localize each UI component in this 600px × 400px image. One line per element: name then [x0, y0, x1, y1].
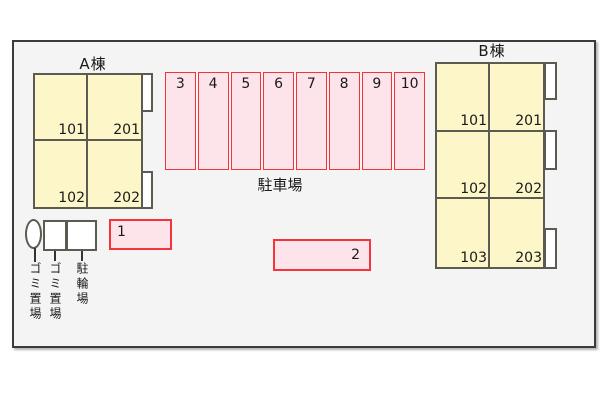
- garbage-area-box: [43, 220, 67, 251]
- label-connector-line: [54, 251, 56, 261]
- garbage-area-oval: [25, 219, 42, 249]
- garbage-area-label: ゴミ置場: [28, 262, 41, 322]
- unit-cell: 202: [490, 132, 543, 200]
- parking-stall: 6: [263, 72, 294, 170]
- building-a-label: A棟: [63, 53, 123, 74]
- unit-number: 201: [515, 114, 543, 130]
- site-plan-page: A棟 101 201 102 202 B棟 101 201 102 202 10…: [0, 0, 600, 400]
- unit-cell: 101: [35, 75, 88, 141]
- unit-cell: 102: [35, 141, 88, 207]
- unit-number: 203: [515, 251, 543, 267]
- parking-stall: 2: [273, 239, 371, 271]
- garbage-area-label: ゴミ置場: [48, 262, 61, 322]
- stairwell: [141, 73, 153, 112]
- stall-number: 1: [117, 224, 126, 240]
- stairwell: [544, 228, 557, 269]
- bicycle-parking-box: [66, 220, 97, 251]
- parking-stall: 3: [165, 72, 196, 170]
- unit-number: 202: [515, 182, 543, 198]
- unit-cell: 102: [437, 132, 490, 200]
- stall-number: 2: [351, 247, 360, 263]
- label-connector-line: [81, 251, 83, 261]
- unit-cell: 103: [437, 199, 490, 267]
- unit-number: 101: [58, 123, 86, 139]
- unit-number: 102: [58, 191, 86, 207]
- building-b: 101 201 102 202 103 203: [435, 62, 545, 269]
- label-connector-line: [34, 248, 36, 262]
- unit-number: 103: [460, 251, 488, 267]
- parking-stall: 7: [296, 72, 327, 170]
- building-a: 101 201 102 202: [33, 73, 143, 209]
- parking-stall: 1: [109, 219, 172, 250]
- unit-number: 101: [460, 114, 488, 130]
- stairwell: [544, 130, 557, 170]
- parking-stall: 9: [362, 72, 393, 170]
- parking-stall: 8: [329, 72, 360, 170]
- parking-lot: 3 4 5 6 7 8 9 10: [165, 72, 425, 170]
- unit-cell: 201: [88, 75, 141, 141]
- unit-number: 201: [113, 123, 141, 139]
- unit-cell: 202: [88, 141, 141, 207]
- unit-cell: 203: [490, 199, 543, 267]
- parking-stall: 4: [198, 72, 229, 170]
- building-b-label: B棟: [462, 40, 522, 61]
- parking-lot-label: 駐車場: [240, 174, 320, 195]
- parking-stall: 5: [231, 72, 262, 170]
- unit-number: 202: [113, 191, 141, 207]
- bicycle-parking-label: 駐輪場: [75, 262, 88, 307]
- unit-number: 102: [460, 182, 488, 198]
- unit-cell: 201: [490, 64, 543, 132]
- stairwell: [544, 62, 557, 100]
- unit-cell: 101: [437, 64, 490, 132]
- stairwell: [141, 171, 153, 209]
- parking-stall: 10: [394, 72, 425, 170]
